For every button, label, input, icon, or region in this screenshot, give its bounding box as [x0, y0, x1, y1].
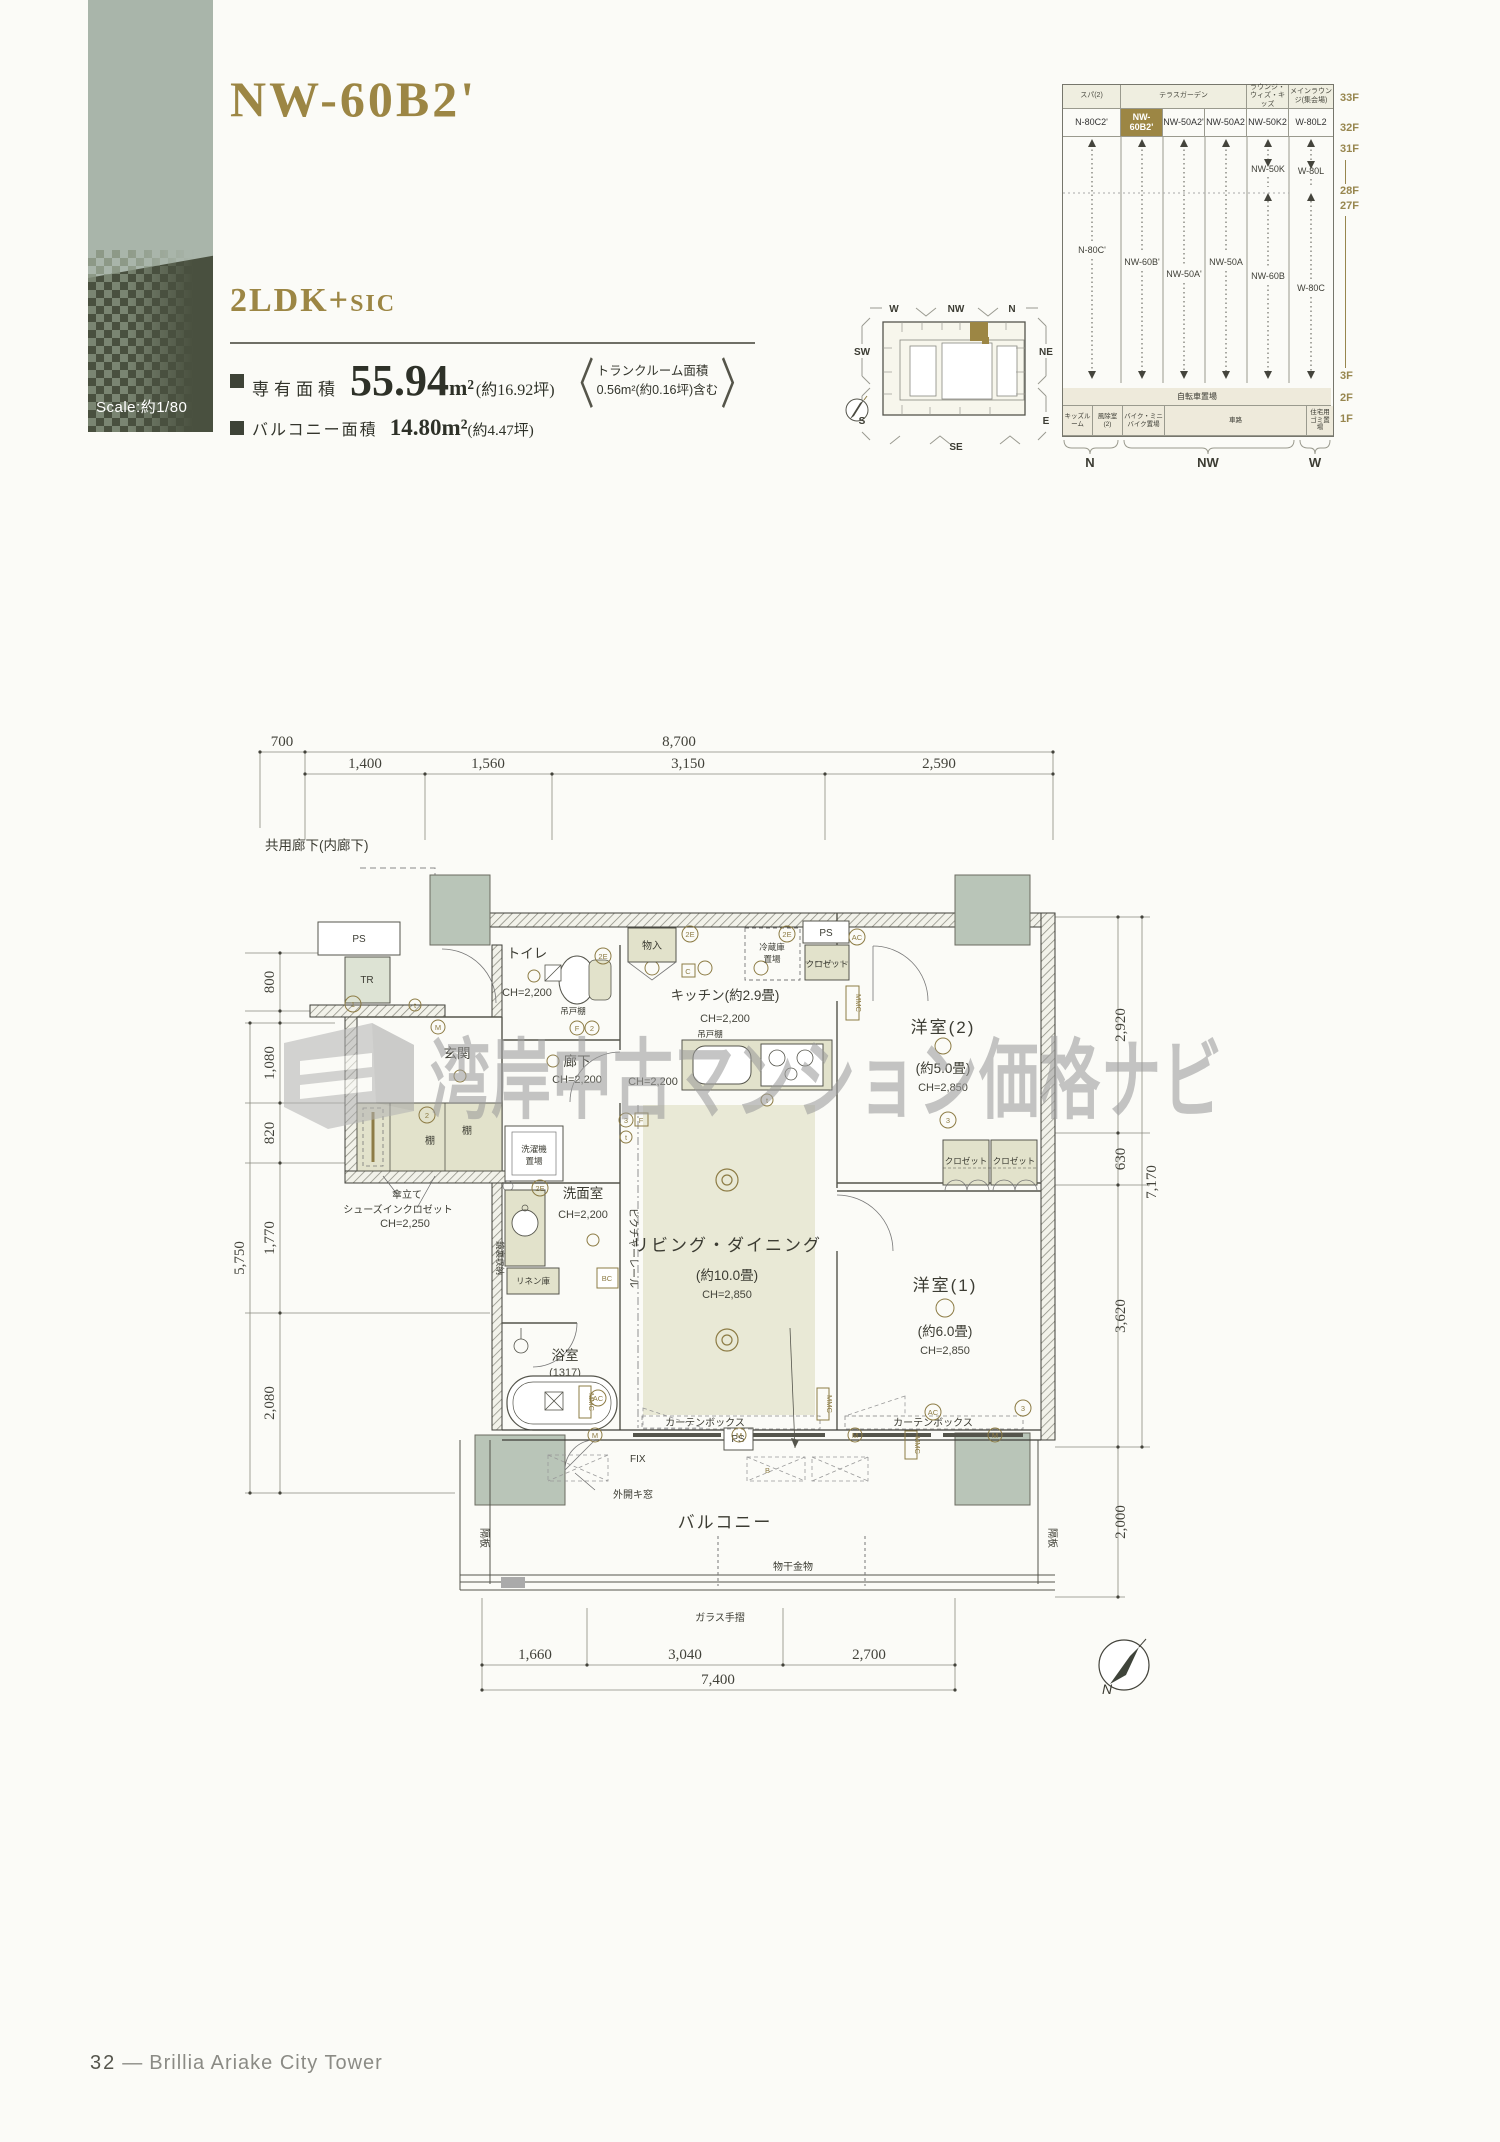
- glass-rail-label: ガラス手摺: [695, 1611, 745, 1624]
- section-unit: N-80C2': [1063, 109, 1121, 137]
- svg-text:NW: NW: [1197, 455, 1219, 468]
- footer-title: Brillia Ariake City Tower: [149, 2052, 383, 2074]
- svg-text:M: M: [592, 1431, 598, 1440]
- svg-text:MMC: MMC: [587, 1393, 596, 1411]
- svg-text:(約5.0畳): (約5.0畳): [916, 1061, 971, 1076]
- svg-text:置場: 置場: [525, 1156, 543, 1166]
- svg-text:2,920: 2,920: [1113, 1008, 1129, 1042]
- divider-rule: [230, 342, 755, 344]
- shelf-label: 棚: [425, 1134, 435, 1147]
- svg-text:M: M: [435, 1023, 441, 1032]
- floor-label: 1F: [1340, 413, 1353, 425]
- svg-text:2,080: 2,080: [262, 1386, 278, 1420]
- svg-text:CH=2,200: CH=2,200: [700, 1013, 750, 1025]
- svg-text:8,700: 8,700: [662, 734, 696, 750]
- svg-text:NW: NW: [948, 304, 965, 315]
- svg-text:1: 1: [351, 1000, 355, 1009]
- entrance-label: 玄関: [444, 1045, 471, 1061]
- svg-text:800: 800: [262, 971, 278, 994]
- living-dining-label: リビング・ダイニング: [632, 1236, 822, 1255]
- svg-text:NW-60B: NW-60B: [1251, 271, 1285, 281]
- area-block: 専有面積 55.94 m² (約16.92坪) 〈 トランクルーム面積 0.56…: [230, 352, 790, 441]
- svg-text:W: W: [889, 304, 899, 315]
- floor-label: 2F: [1340, 392, 1353, 404]
- svg-text:630: 630: [1113, 1148, 1129, 1171]
- square-bullet-icon: [230, 374, 244, 388]
- svg-text:820: 820: [262, 1122, 278, 1145]
- svg-text:1,560: 1,560: [471, 756, 505, 772]
- svg-text:MMC: MMC: [913, 1436, 922, 1454]
- svg-text:NE: NE: [1039, 347, 1053, 358]
- svg-text:CH=2,200: CH=2,200: [558, 1209, 608, 1221]
- svg-text:3,040: 3,040: [668, 1647, 702, 1663]
- svg-text:NW-50A': NW-50A': [1166, 269, 1202, 279]
- unit-type: 2LDK+SIC: [230, 282, 396, 320]
- svg-text:2: 2: [590, 1024, 594, 1033]
- picture-rail-label: ピクチャーレール: [627, 1208, 639, 1288]
- drying-fixture-label: 物干金物: [773, 1560, 813, 1573]
- section-unit: NW-50A2': [1163, 109, 1205, 137]
- square-bullet-icon: [230, 421, 244, 435]
- section-header: ラウンジ・ウィズ・キッズ: [1247, 85, 1289, 109]
- section-header: スパ(2): [1063, 85, 1121, 109]
- angle-bracket-close: 〉: [720, 341, 754, 419]
- svg-text:E: E: [1043, 416, 1050, 427]
- ps-label: PS: [819, 928, 833, 939]
- section-unit: NW-50K2: [1247, 109, 1289, 137]
- svg-text:CH=2,200: CH=2,200: [628, 1076, 678, 1088]
- balcony-label: バルコニー: [678, 1513, 773, 1532]
- section-header-row: スパ(2) テラスガーデン ラウンジ・ウィズ・キッズ メインラウンジ(集会場): [1063, 85, 1333, 109]
- closet-label: クロゼット: [806, 959, 849, 969]
- angle-bracket-open: 〈: [561, 341, 595, 419]
- page-footer: 32—Brillia Ariake City Tower: [90, 2052, 383, 2075]
- closet-label: クロゼット: [945, 1156, 988, 1166]
- svg-text:BC: BC: [602, 1274, 613, 1283]
- svg-text:MMC: MMC: [825, 1395, 834, 1413]
- fix-window-label: FIX: [630, 1454, 646, 1465]
- svg-text:N: N: [1085, 455, 1094, 468]
- svg-text:AC: AC: [928, 1408, 939, 1417]
- exclusive-area-row: 専有面積 55.94 m² (約16.92坪) 〈 トランクルーム面積 0.56…: [230, 356, 790, 405]
- building-section-diagram: スパ(2) テラスガーデン ラウンジ・ウィズ・キッズ メインラウンジ(集会場) …: [1062, 84, 1362, 464]
- svg-text:置場: 置場: [763, 954, 781, 964]
- balcony-value: 14.80m²: [390, 415, 468, 441]
- section-unit-row: N-80C2' NW-60B2' NW-50A2' NW-50A2 NW-50K…: [1063, 109, 1333, 137]
- section-header: メインラウンジ(集会場): [1289, 85, 1333, 109]
- ground-cell: 車路: [1165, 406, 1307, 436]
- svg-text:2E: 2E: [535, 1184, 544, 1193]
- svg-text:N-80C': N-80C': [1078, 245, 1106, 255]
- hall-label: 廊下: [564, 1053, 591, 1069]
- bike-parking-row: 自転車置場: [1063, 388, 1331, 406]
- section-unit: NW-50A2: [1205, 109, 1247, 137]
- section-unit-current: NW-60B2': [1121, 109, 1163, 137]
- side-ribbon: [88, 0, 213, 432]
- tr-label: TR: [360, 975, 373, 986]
- svg-text:CH=2,850: CH=2,850: [920, 1345, 970, 1357]
- svg-text:(約6.0畳): (約6.0畳): [918, 1324, 973, 1339]
- partition-label: 隔板: [1046, 1528, 1059, 1548]
- svg-text:W-80L: W-80L: [1298, 166, 1324, 176]
- floor-label: 3F: [1340, 370, 1353, 382]
- svg-text:M: M: [736, 1431, 742, 1440]
- scale-label: Scale:約1/80: [96, 396, 187, 417]
- svg-text:F: F: [639, 1116, 644, 1125]
- closet-label: クロゼット: [993, 1156, 1036, 1166]
- svg-text:3,150: 3,150: [671, 756, 705, 772]
- bedroom1-label: 洋室(1): [913, 1276, 978, 1295]
- svg-text:2,590: 2,590: [922, 756, 956, 772]
- svg-text:3: 3: [624, 1116, 628, 1125]
- svg-text:AC: AC: [852, 933, 863, 942]
- svg-text:M: M: [992, 1431, 998, 1440]
- section-unit: W-80L2: [1289, 109, 1333, 137]
- svg-text:2: 2: [425, 1111, 429, 1120]
- storage-label: 物入: [642, 939, 662, 952]
- floor-label: 28F: [1340, 185, 1359, 197]
- svg-text:CH=2,850: CH=2,850: [918, 1082, 968, 1094]
- mirror-storage-label: 鏡裏収納: [495, 1241, 505, 1275]
- svg-text:3: 3: [946, 1116, 950, 1125]
- svg-text:F: F: [575, 1024, 580, 1033]
- svg-text:NW-60B': NW-60B': [1124, 257, 1160, 267]
- curtain-box-label: カーテンボックス: [665, 1417, 745, 1429]
- svg-text:2,700: 2,700: [852, 1647, 886, 1663]
- svg-text:2E: 2E: [598, 952, 607, 961]
- section-direction-braces: N NW W: [1062, 438, 1362, 468]
- ground-cell: 住宅用ゴミ置場: [1307, 406, 1333, 436]
- svg-text:2E: 2E: [685, 930, 694, 939]
- svg-text:N: N: [1008, 304, 1015, 315]
- svg-text:M: M: [852, 1431, 858, 1440]
- ribbon-top-sage: [88, 0, 213, 278]
- svg-text:2E: 2E: [782, 930, 791, 939]
- area-tsubo: (約16.92坪): [476, 376, 555, 400]
- sic-label: シューズインクロゼット: [343, 1203, 453, 1216]
- balcony-area-row: バルコニー面積 14.80m² (約4.47坪): [230, 415, 790, 441]
- svg-text:MMC: MMC: [854, 994, 863, 1012]
- section-shaft-diagram: N-80C' NW-60B' NW-50A' NW-50A NW-50K NW-…: [1063, 137, 1331, 383]
- svg-text:NW-50K: NW-50K: [1251, 164, 1285, 174]
- ps-label: PS: [352, 934, 366, 945]
- linen-label: リネン庫: [516, 1276, 551, 1286]
- unit-type-main: 2LDK+: [230, 282, 350, 319]
- shelf-label: 棚: [462, 1124, 472, 1137]
- ground-cell: 風除室(2): [1093, 406, 1123, 436]
- svg-text:t: t: [625, 1133, 628, 1142]
- balcony-label: バルコニー面積: [252, 416, 378, 440]
- svg-text:NW-50A: NW-50A: [1209, 257, 1243, 267]
- ground-cell: バイク・ミニバイク置場: [1123, 406, 1165, 436]
- unit-type-suffix: SIC: [350, 291, 396, 317]
- hanging-shelf-label: 吊戸棚: [560, 1006, 586, 1016]
- svg-text:3,620: 3,620: [1113, 1299, 1129, 1333]
- trunk-note: 〈 トランクルーム面積 0.56m²(約0.16坪)含む 〉: [561, 356, 755, 405]
- balcony-tsubo: (約4.47坪): [468, 419, 534, 440]
- washroom-label: 洗面室: [563, 1185, 604, 1201]
- svg-text:3: 3: [1021, 1404, 1025, 1413]
- umbrella-stand-label: 傘立て: [392, 1188, 422, 1201]
- trunk-line1: トランクルーム面積: [597, 364, 709, 378]
- svg-text:SE: SE: [949, 442, 963, 452]
- bedroom2-label: 洋室(2): [911, 1018, 976, 1037]
- svg-text:1,400: 1,400: [348, 756, 382, 772]
- svg-text:1,660: 1,660: [518, 1647, 552, 1663]
- floor-label: 31F: [1340, 143, 1359, 155]
- washer-label: 洗濯機: [521, 1144, 547, 1154]
- area-label: 専有面積: [252, 375, 340, 400]
- svg-text:1,080: 1,080: [262, 1046, 278, 1080]
- svg-text:700: 700: [271, 734, 294, 750]
- area-unit: m²: [449, 375, 474, 401]
- outswing-window-label: 外開キ窓: [613, 1488, 653, 1501]
- svg-text:7,400: 7,400: [701, 1672, 735, 1688]
- trunk-line2: 0.56m²(約0.16坪)含む: [597, 383, 719, 397]
- page-title: NW-60B2': [230, 70, 477, 128]
- section-header: テラスガーデン: [1121, 85, 1247, 109]
- svg-text:1,770: 1,770: [262, 1221, 278, 1255]
- curtain-box-label: カーテンボックス: [893, 1417, 973, 1429]
- svg-text:B: B: [765, 1466, 770, 1475]
- svg-text:W-80C: W-80C: [1297, 283, 1325, 293]
- brochure-page: Scale:約1/80 NW-60B2' 2LDK+SIC 専有面積 55.94…: [0, 0, 1500, 2142]
- svg-text:SW: SW: [854, 347, 871, 358]
- floor-plan: 700 8,700 1,400 1,560 3,150 2,590 800 1,…: [205, 728, 1165, 1703]
- bath-label: 浴室: [552, 1347, 579, 1363]
- svg-text:CH=2,850: CH=2,850: [702, 1289, 752, 1301]
- page-number: 32: [90, 2052, 116, 2074]
- floor-label: 32F: [1340, 122, 1359, 134]
- svg-text:CH=2,200: CH=2,200: [502, 987, 552, 999]
- plan-compass-icon: N: [1099, 1639, 1149, 1697]
- floor-label: 33F: [1340, 92, 1359, 104]
- svg-text:S: S: [859, 416, 866, 427]
- toilet-label: トイレ: [507, 946, 548, 961]
- svg-text:W: W: [1309, 455, 1322, 468]
- fridge-label: 冷蔵庫: [759, 942, 785, 952]
- svg-text:CH=2,250: CH=2,250: [380, 1218, 430, 1230]
- area-value: 55.94: [350, 359, 449, 403]
- corridor-label: 共用廊下(内廊下): [265, 837, 369, 853]
- svg-text:2,000: 2,000: [1113, 1505, 1129, 1539]
- compass-north-label: N: [1102, 1681, 1113, 1697]
- hanging-shelf-label: 吊戸棚: [697, 1029, 723, 1039]
- svg-text:7,170: 7,170: [1144, 1165, 1160, 1199]
- svg-text:5,750: 5,750: [232, 1241, 248, 1275]
- ground-cell: キッズルーム: [1063, 406, 1093, 436]
- key-plan: W NW N SW NE S E SE: [830, 300, 1060, 452]
- living-dining-floor: [643, 1105, 815, 1415]
- floor-label: 27F: [1340, 200, 1359, 212]
- svg-text:C: C: [685, 967, 691, 976]
- svg-text:t: t: [766, 1096, 769, 1105]
- kitchen-label: キッチン(約2.9畳): [671, 988, 780, 1003]
- svg-text:(約10.0畳): (約10.0畳): [696, 1268, 758, 1283]
- section-ground-row: キッズルーム 風除室(2) バイク・ミニバイク置場 車路 住宅用ゴミ置場: [1063, 406, 1333, 436]
- partition-label: 隔板: [478, 1528, 491, 1548]
